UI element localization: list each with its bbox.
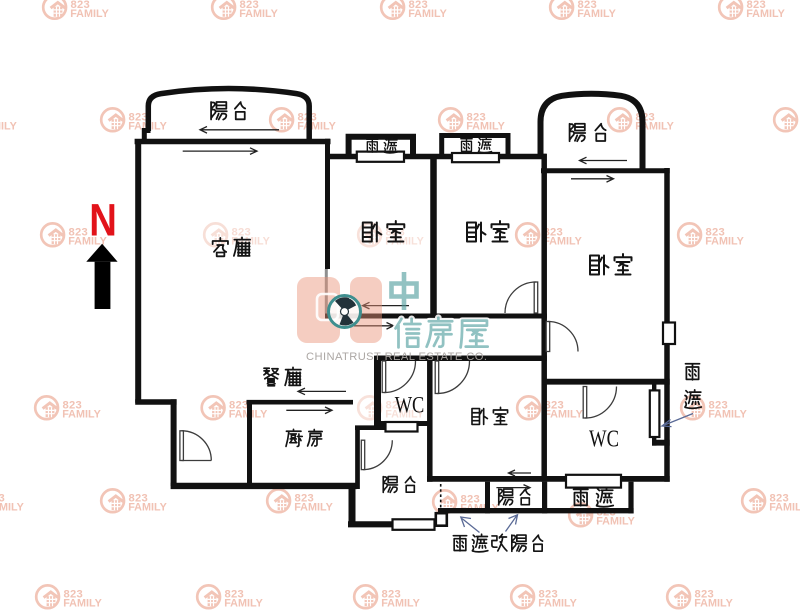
svg-text:WC: WC (395, 392, 425, 419)
svg-text:CHINATRUST REAL ESTATE CO.: CHINATRUST REAL ESTATE CO. (306, 351, 487, 363)
svg-text:N: N (89, 195, 117, 246)
svg-text:WC: WC (589, 425, 619, 452)
